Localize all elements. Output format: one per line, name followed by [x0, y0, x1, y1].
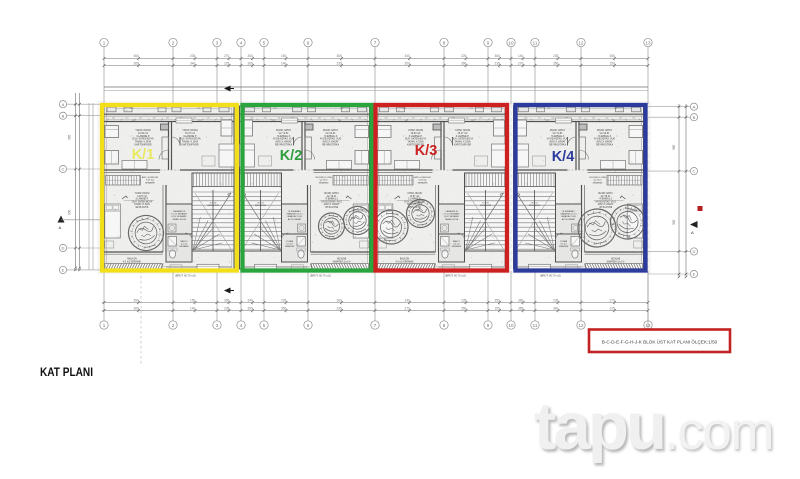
svg-text:225: 225: [224, 61, 230, 65]
svg-text:140: 140: [190, 306, 196, 310]
svg-text:270: 270: [610, 298, 616, 302]
svg-text:365: 365: [224, 298, 230, 302]
svg-text:6: 6: [307, 40, 310, 45]
svg-text:11: 11: [533, 323, 538, 328]
svg-text:11: 11: [533, 40, 538, 45]
svg-text:9: 9: [487, 40, 490, 45]
svg-text:360: 360: [495, 54, 501, 58]
svg-text:350: 350: [610, 54, 616, 58]
svg-text:350: 350: [134, 298, 140, 302]
svg-text:5: 5: [263, 40, 266, 45]
svg-text:365: 365: [134, 61, 140, 65]
svg-text:150: 150: [495, 306, 501, 310]
svg-text:B-C-D-E-F-G-H-J-K BLOK ÜST KAT: B-C-D-E-F-G-H-J-K BLOK ÜST KAT PLANI ÖLÇ…: [602, 339, 718, 345]
svg-text:2: 2: [172, 323, 175, 328]
svg-text:300: 300: [672, 219, 676, 225]
svg-text:140: 140: [281, 61, 287, 65]
svg-text:A: A: [691, 230, 694, 235]
svg-text:A: A: [59, 225, 62, 230]
svg-text:350: 350: [495, 298, 501, 302]
svg-text:E: E: [693, 272, 696, 277]
svg-text:365: 365: [672, 144, 676, 150]
svg-text:340: 340: [553, 306, 559, 310]
svg-text:C: C: [62, 167, 65, 172]
svg-text:235: 235: [461, 298, 467, 302]
svg-text:6: 6: [307, 323, 310, 328]
svg-text:350: 350: [553, 61, 559, 65]
svg-text:270: 270: [518, 61, 524, 65]
svg-text:235: 235: [337, 306, 343, 310]
svg-text:360: 360: [134, 54, 140, 58]
svg-text:(BRÜT: 60.70 m2): (BRÜT: 60.70 m2): [310, 274, 331, 278]
svg-text:340: 340: [405, 54, 411, 58]
svg-text:235: 235: [224, 306, 230, 310]
svg-text:C: C: [693, 169, 696, 174]
svg-text:150: 150: [610, 61, 616, 65]
svg-text:7: 7: [374, 323, 377, 328]
svg-text:7: 7: [374, 40, 377, 45]
svg-text:340: 340: [248, 298, 254, 302]
svg-text:300: 300: [68, 209, 72, 215]
svg-text:350: 350: [405, 61, 411, 65]
svg-text:13: 13: [645, 323, 651, 328]
svg-text:12: 12: [578, 40, 584, 45]
svg-text:360: 360: [518, 298, 524, 302]
svg-text:360: 360: [337, 298, 343, 302]
svg-text:350: 350: [248, 306, 254, 310]
svg-text:3: 3: [216, 323, 219, 328]
svg-text:270: 270: [224, 54, 230, 58]
svg-text:360: 360: [461, 61, 467, 65]
svg-text:B: B: [62, 113, 65, 118]
svg-text:225: 225: [461, 54, 467, 58]
svg-text:(BRÜT: 60.70 m2): (BRÜT: 60.70 m2): [540, 274, 561, 278]
svg-text:10: 10: [508, 40, 514, 45]
svg-text:K/1: K/1: [132, 147, 155, 163]
svg-text:340: 340: [190, 61, 196, 65]
svg-text:235: 235: [190, 54, 196, 58]
svg-text:140: 140: [518, 54, 524, 58]
svg-text:1: 1: [103, 323, 106, 328]
svg-text:(BRÜT: 60.70 m2): (BRÜT: 60.70 m2): [175, 274, 196, 278]
svg-text:A: A: [62, 102, 65, 107]
svg-text:360: 360: [281, 306, 287, 310]
svg-text:150: 150: [281, 54, 287, 58]
svg-text:9: 9: [487, 323, 490, 328]
svg-text:K/4: K/4: [552, 149, 575, 165]
svg-text:365: 365: [68, 134, 72, 140]
svg-text:140: 140: [405, 298, 411, 302]
svg-text:4: 4: [240, 40, 243, 45]
svg-text:350: 350: [461, 306, 467, 310]
svg-text:270: 270: [405, 306, 411, 310]
svg-text:235: 235: [553, 54, 559, 58]
svg-text:B: B: [693, 115, 696, 120]
svg-text:E: E: [62, 268, 65, 273]
svg-text:225: 225: [610, 306, 616, 310]
svg-text:1: 1: [103, 40, 106, 45]
svg-text:235: 235: [495, 61, 501, 65]
svg-text:8: 8: [443, 40, 446, 45]
svg-text:12: 12: [578, 323, 584, 328]
svg-text:K/2: K/2: [280, 148, 303, 164]
svg-text:10: 10: [508, 323, 514, 328]
svg-text:8: 8: [443, 323, 446, 328]
svg-text:4: 4: [240, 323, 243, 328]
svg-text:A: A: [693, 104, 696, 109]
svg-text:225: 225: [281, 298, 287, 302]
svg-text:3: 3: [216, 40, 219, 45]
svg-text:K/3: K/3: [415, 143, 438, 159]
svg-text:D: D: [62, 246, 65, 251]
svg-text:5: 5: [263, 323, 266, 328]
svg-text:365: 365: [518, 306, 524, 310]
svg-text:2: 2: [172, 40, 175, 45]
svg-text:D: D: [693, 249, 696, 254]
svg-text:235: 235: [337, 61, 343, 65]
svg-text:350: 350: [248, 54, 254, 58]
svg-text:150: 150: [190, 298, 196, 302]
svg-text:365: 365: [337, 54, 343, 58]
svg-text:360: 360: [134, 306, 140, 310]
svg-text:(BRÜT: 60.70 m2): (BRÜT: 60.70 m2): [445, 274, 466, 278]
svg-text:235: 235: [553, 298, 559, 302]
svg-text:360: 360: [248, 61, 254, 65]
svg-text:13: 13: [645, 40, 651, 45]
